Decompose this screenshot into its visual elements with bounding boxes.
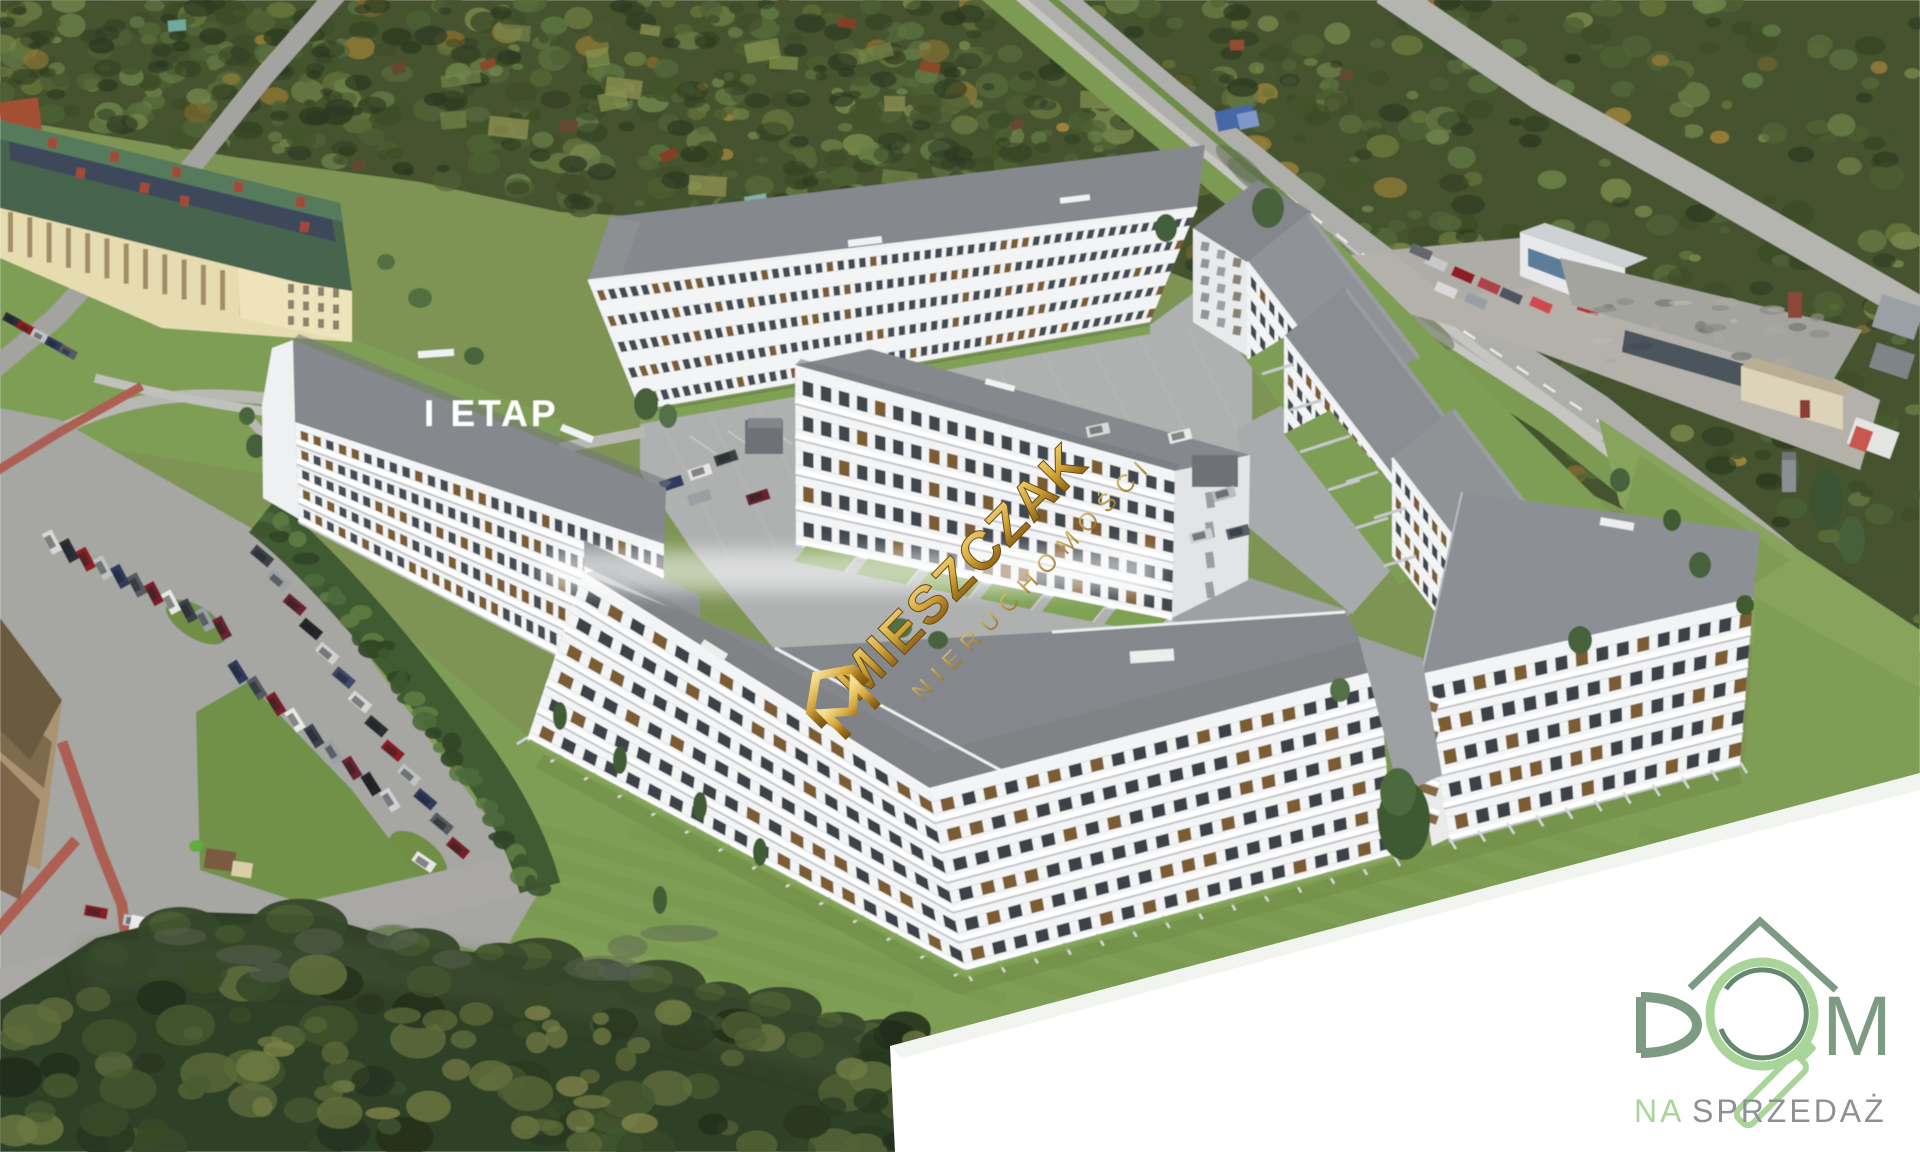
svg-text:NA: NA xyxy=(1634,1093,1684,1129)
svg-text:I ETAP: I ETAP xyxy=(424,393,559,434)
svg-text:M: M xyxy=(1822,979,1892,1073)
svg-text:SPRZEDAŻ: SPRZEDAŻ xyxy=(1692,1093,1887,1129)
